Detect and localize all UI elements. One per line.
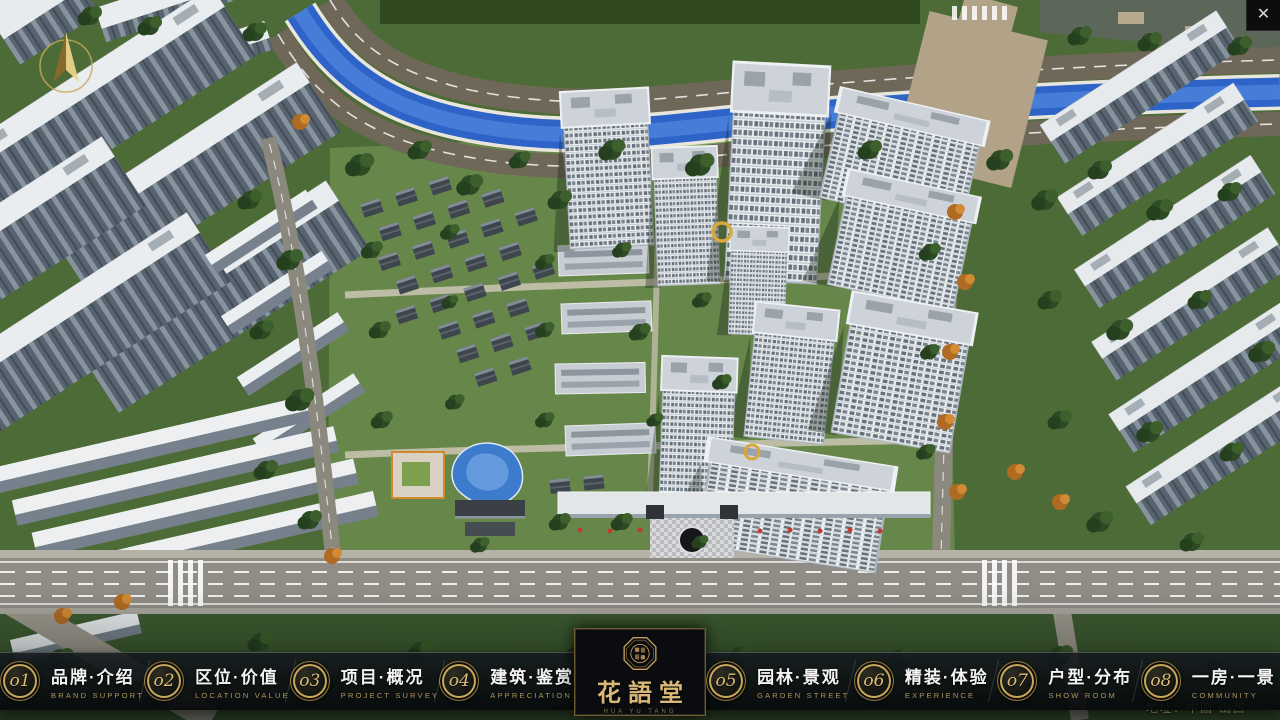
nav-label-en: SHOW ROOM (1048, 691, 1117, 700)
nav-label-cn: 建筑·鉴赏 (490, 663, 574, 688)
nav-item-floorplan[interactable]: o7 户型·分布 SHOW ROOM (993, 653, 1137, 709)
logo-title: 花語堂 (590, 673, 690, 708)
nav-item-views[interactable]: o8 一房·一景 COMMUNITY (1137, 653, 1280, 709)
nav-item-architecture[interactable]: o4 建筑·鉴赏 APPRECIATION (439, 653, 574, 709)
nav-item-interior[interactable]: o6 精装·体验 EXPERIENCE (850, 653, 994, 709)
nav-item-location[interactable]: o2 区位·价值 LOCATION VALUE (144, 653, 290, 709)
nav-group-left: o1 品牌·介绍 BRAND SUPPORT o2 区位·价值 LOCATION… (0, 652, 574, 710)
nav-label-en: EXPERIENCE (905, 691, 975, 700)
nav-label-en: LOCATION VALUE (195, 691, 290, 700)
logo-wrap: 花語堂 HUA YU TANG (574, 652, 706, 710)
nav-label-cn: 园林·景观 (757, 663, 841, 688)
logo-panel[interactable]: 花語堂 HUA YU TANG (574, 628, 706, 716)
nav-badge-07: o7 (997, 661, 1037, 701)
nav-label-cn: 户型·分布 (1048, 663, 1132, 688)
aerial-site-render[interactable] (0, 0, 1280, 720)
close-button[interactable]: ✕ (1246, 0, 1280, 31)
compass-icon (34, 26, 98, 98)
nav-badge-05: o5 (706, 661, 746, 701)
nav-badge-02: o2 (144, 661, 184, 701)
nav-badge-06: o6 (854, 661, 894, 701)
nav-item-garden[interactable]: o5 园林·景观 GARDEN STREET (706, 653, 850, 709)
nav-label-en: BRAND SUPPORT (51, 691, 144, 700)
nav-badge-03: o3 (290, 661, 330, 701)
logo-seal-icon (619, 636, 661, 671)
nav-label-cn: 一房·一景 (1192, 663, 1276, 688)
site-plan-svg (0, 0, 1280, 720)
nav-group-right: o5 园林·景观 GARDEN STREET o6 精装·体验 EXPERIEN… (706, 652, 1280, 710)
nav-label-en: APPRECIATION (490, 691, 572, 700)
app-window: ✕ 地址：中国·山西 o1 品牌·介绍 BRAND SUPPORT o2 区位·… (0, 0, 1280, 720)
nav-badge-08: o8 (1141, 661, 1181, 701)
nav-label-cn: 精装·体验 (905, 663, 989, 688)
nav-label-cn: 项目·概况 (341, 663, 425, 688)
nav-label-en: GARDEN STREET (757, 691, 849, 700)
logo-tagline: HUA YU TANG (603, 709, 676, 715)
nav-label-cn: 区位·价值 (195, 663, 279, 688)
nav-label-cn: 品牌·介绍 (51, 663, 135, 688)
nav-label-en: PROJECT SURVEY (341, 691, 439, 700)
nav-item-project[interactable]: o3 项目·概况 PROJECT SURVEY (290, 653, 439, 709)
bottom-navbar: o1 品牌·介绍 BRAND SUPPORT o2 区位·价值 LOCATION… (0, 652, 1280, 710)
nav-badge-01: o1 (0, 661, 40, 701)
nav-label-en: COMMUNITY (1192, 691, 1258, 700)
nav-item-brand[interactable]: o1 品牌·介绍 BRAND SUPPORT (0, 653, 144, 709)
nav-badge-04: o4 (439, 661, 479, 701)
